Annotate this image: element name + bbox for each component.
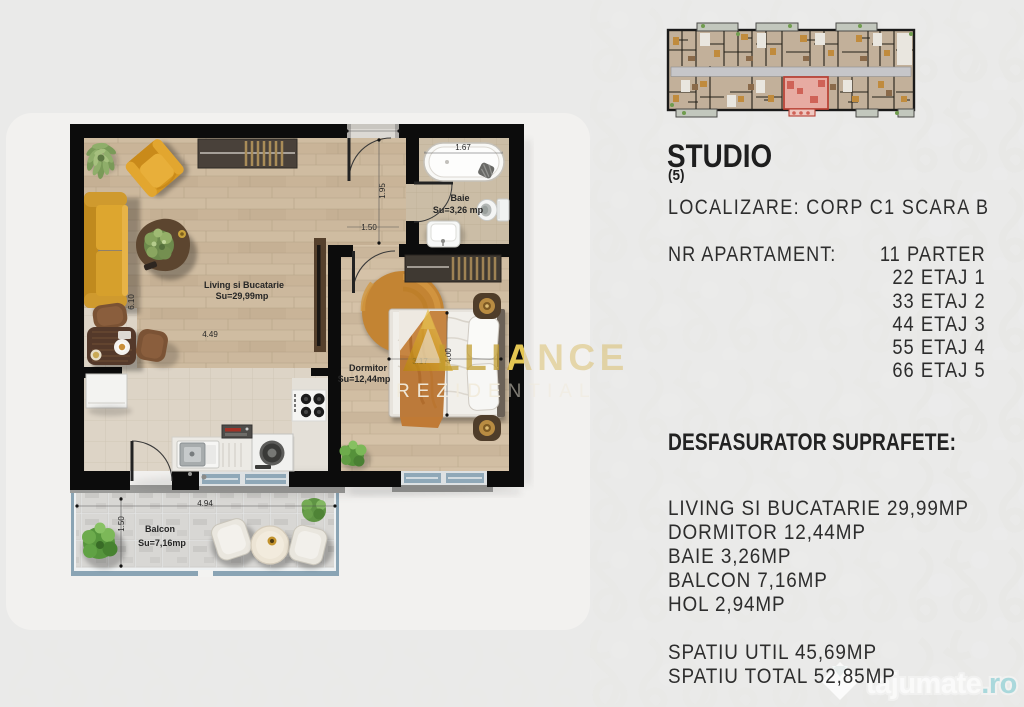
svg-text:1.95: 1.95 bbox=[378, 183, 387, 199]
svg-text:6.10: 6.10 bbox=[127, 294, 136, 310]
svg-text:Balcon: Balcon bbox=[145, 524, 175, 534]
svg-text:1.67: 1.67 bbox=[455, 143, 471, 152]
svg-text:Dormitor: Dormitor bbox=[349, 363, 387, 373]
svg-text:Su=12,44mp: Su=12,44mp bbox=[338, 374, 391, 384]
svg-text:Su=7,16mp: Su=7,16mp bbox=[138, 538, 186, 548]
svg-text:Su=29,99mp: Su=29,99mp bbox=[216, 291, 269, 301]
svg-text:Baie: Baie bbox=[450, 193, 469, 203]
svg-text:Su=3,26 mp: Su=3,26 mp bbox=[433, 205, 484, 215]
svg-text:1.50: 1.50 bbox=[361, 223, 377, 232]
svg-text:1.50: 1.50 bbox=[117, 516, 126, 532]
svg-text:Living si Bucatarie: Living si Bucatarie bbox=[204, 280, 284, 290]
svg-text:4.94: 4.94 bbox=[197, 499, 213, 508]
svg-text:4.49: 4.49 bbox=[202, 330, 218, 339]
